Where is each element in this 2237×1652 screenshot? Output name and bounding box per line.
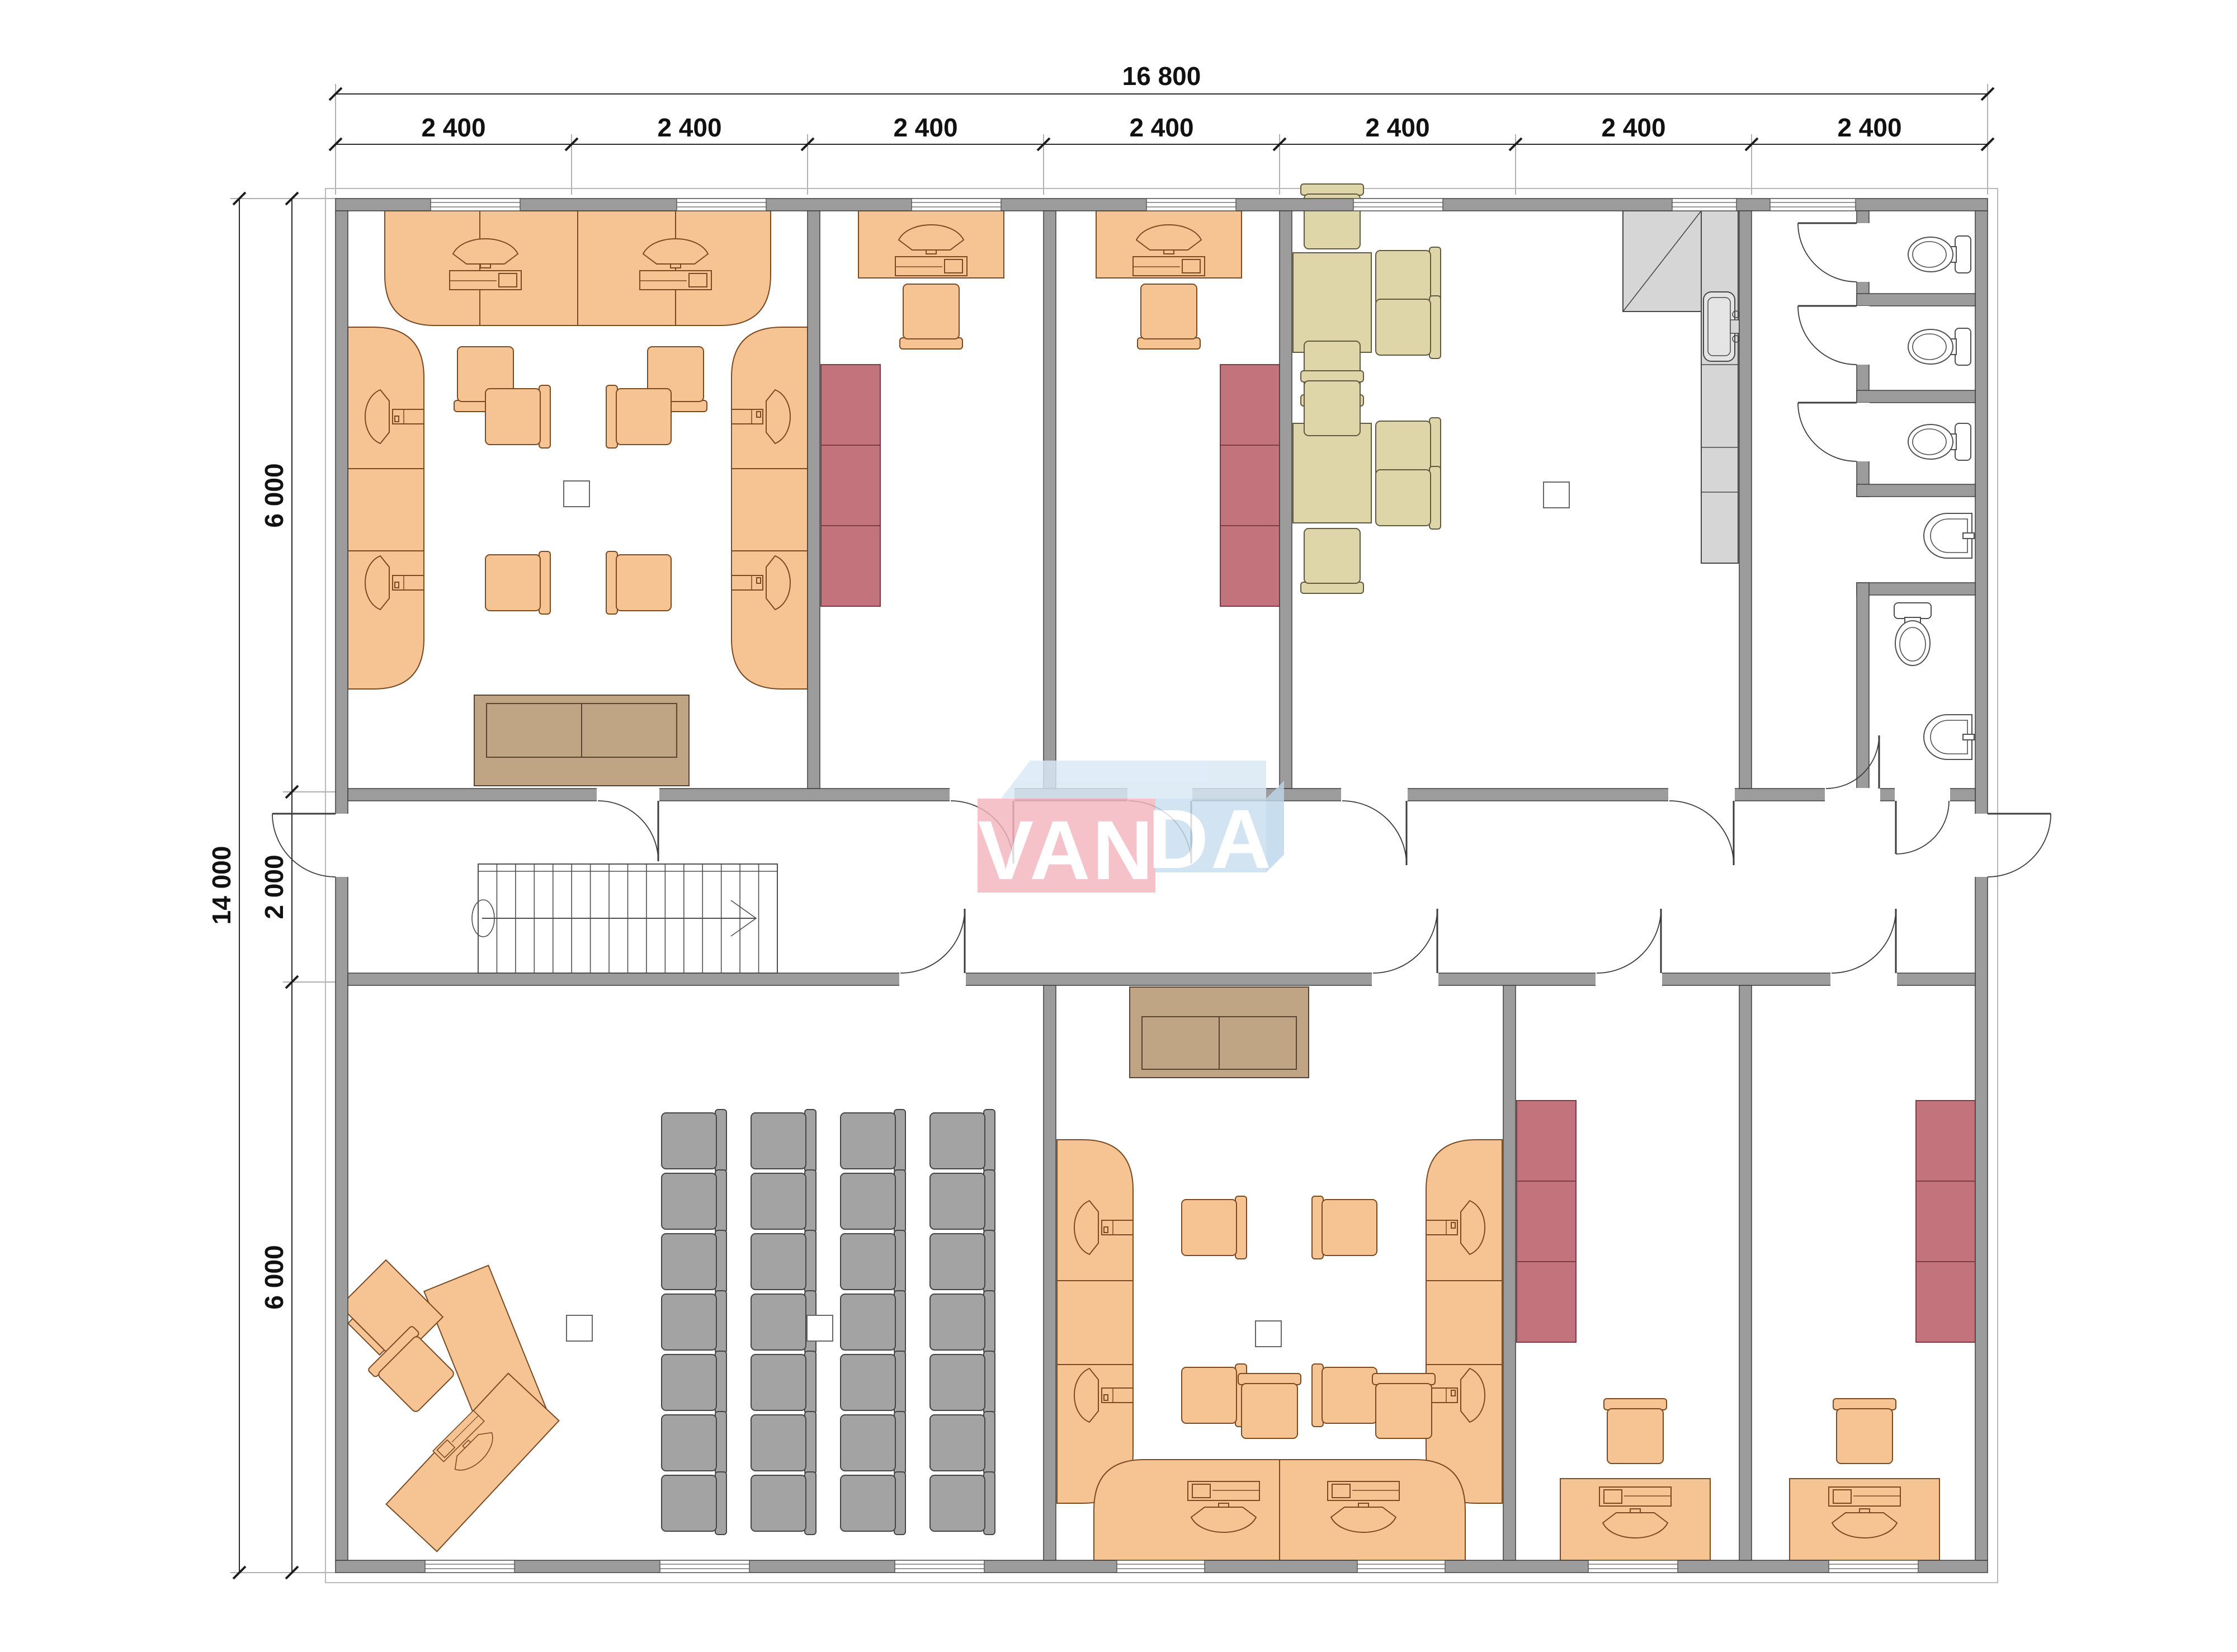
audience-chair [751,1351,816,1414]
sink [1924,715,1974,759]
door [1372,909,1438,986]
room-office-bottom-2 [1790,1101,1975,1560]
room-meeting [1293,184,1739,593]
room-open-office-top [348,211,808,786]
floor-plan-canvas: 16 800 2 400 2 400 2 400 2 400 2 400 2 4… [0,0,2237,1652]
floor-box [1256,1321,1281,1347]
kitchenette [1623,211,1739,563]
office-chair [485,551,550,614]
window [660,1560,749,1573]
cabinet [1220,365,1280,606]
door-wc-stall-2 [1798,306,1870,365]
audience-chair [930,1230,995,1293]
dim-top-seg-4: 2 400 [1129,113,1193,142]
office-chair [1138,284,1200,349]
partition [1044,985,1056,1560]
washroom-wall-top [1857,583,1975,595]
washroom-wall-left [1857,583,1869,801]
audience-chair [751,1472,816,1535]
audience-chair [841,1230,905,1293]
audience-chair [662,1412,726,1474]
reception-desk [336,1260,559,1551]
dim-top-seg-5: 2 400 [1365,113,1429,142]
room-open-office-bottom [1057,987,1502,1560]
audience-chair [751,1412,816,1474]
audience-chair [930,1110,995,1172]
meeting-chair [1376,466,1441,529]
meeting-chair [1301,528,1363,593]
meeting-chair [1301,184,1363,249]
dim-left-middle: 2 000 [259,855,289,919]
dim-top-seg-1: 2 400 [421,113,485,142]
logo-text-van: VAN [978,803,1155,897]
toilet [1908,423,1971,460]
toilet [1894,603,1931,665]
door-wc-stall-1 [1798,223,1870,282]
curved-desk-right [731,327,808,689]
curved-desk-right [1426,1140,1502,1503]
office-chair [1182,1364,1247,1427]
door [899,909,966,986]
window [1146,199,1236,211]
door [1596,909,1662,986]
room-training [336,1110,995,1551]
sofa [474,695,689,786]
office-chair [900,284,962,349]
office-chair [1372,1373,1435,1438]
dim-top-seg-2: 2 400 [657,113,721,142]
logo-text-da: DA [1148,792,1274,886]
audience-chair [751,1110,816,1172]
office-chair [1312,1196,1377,1259]
window [1672,199,1736,211]
dim-left-top: 6 000 [259,463,289,527]
room-office-bottom-1 [1517,1101,1710,1560]
meeting-table [1293,253,1371,352]
partition [1280,211,1292,789]
dim-left-total: 14 000 [207,846,236,925]
window [895,1560,984,1573]
partition [808,211,820,789]
audience-chair [841,1110,905,1172]
room-office-top-1 [821,211,1004,606]
kitchen-faucet [1730,320,1739,333]
sink [1924,513,1974,558]
audience-chair [751,1291,816,1353]
window [1353,199,1443,211]
audience-chair [930,1351,995,1414]
audience-chair [841,1291,905,1353]
office-chair [1604,1399,1667,1464]
audience-chair [930,1170,995,1233]
dim-top-total: 16 800 [1122,62,1201,91]
cabinet [1916,1101,1975,1342]
window [431,199,520,211]
window [1117,1560,1205,1573]
audience-chair [930,1291,995,1353]
window [1829,1560,1918,1573]
cabinet [1517,1101,1576,1342]
door-entrance-right [1975,814,2051,877]
door [597,788,659,861]
wc-stall-bottom [1857,484,1975,497]
meeting-table [1293,423,1371,523]
cabinet [821,365,880,606]
audience-chair [662,1291,726,1353]
window [1588,1560,1678,1573]
wc-stall-partition [1857,390,1975,403]
wc-stall-partition [1857,294,1975,306]
audience-chair [662,1230,726,1293]
partition [1503,985,1516,1560]
partition [1044,211,1056,789]
floor-box [1544,482,1569,508]
audience-chair [662,1472,726,1535]
room-office-top-2 [1096,211,1280,606]
audience-chair [841,1472,905,1535]
meeting-chair [1376,296,1441,358]
exterior-wall-right [1975,211,1988,1560]
audience-chair [841,1412,905,1474]
audience-chair [841,1170,905,1233]
audience-chair [751,1170,816,1233]
office-chair [606,551,671,614]
dim-top-seg-7: 2 400 [1837,113,1901,142]
audience-chair [841,1351,905,1414]
partition [1739,985,1752,1560]
door [1668,788,1735,865]
floor-box [567,1315,592,1341]
curved-desk-left [348,327,424,689]
office-chair [485,385,550,448]
toilet [1908,236,1971,273]
audience-chair [662,1170,726,1233]
audience-chair [930,1472,995,1535]
partition [1739,211,1752,789]
office-chair [606,385,671,448]
door [1830,909,1897,986]
office-chair [1833,1399,1896,1464]
stairs [472,864,777,973]
window [425,1560,515,1573]
dim-top-seg-3: 2 400 [893,113,957,142]
audience-chair [751,1230,816,1293]
office-chair [1312,1364,1377,1427]
dim-left-bottom: 6 000 [259,1245,289,1309]
window [1357,1560,1445,1573]
sofa [1130,987,1309,1078]
exterior-wall-left [336,211,348,1560]
window [912,199,1001,211]
office-chair [1182,1196,1247,1259]
toilet [1908,328,1971,365]
wc-area [1894,236,1974,759]
floor-box [807,1315,833,1341]
audience-chair [662,1110,726,1172]
dim-top-seg-6: 2 400 [1601,113,1665,142]
meeting-chair [1301,371,1363,436]
door [1341,788,1408,865]
audience-chair [662,1351,726,1414]
vanda-logo: VAN DA [978,761,1284,897]
window [677,199,766,211]
office-chair [1238,1373,1301,1438]
corridor-wall-bottom [348,973,1975,985]
curved-desk-left [1057,1140,1133,1503]
door-wc-stall-3 [1798,403,1870,461]
floor-box [564,481,589,507]
door-washroom [1895,788,1950,854]
door-wc-lobby [1825,735,1880,801]
window [1770,199,1856,211]
audience-chair [930,1412,995,1474]
